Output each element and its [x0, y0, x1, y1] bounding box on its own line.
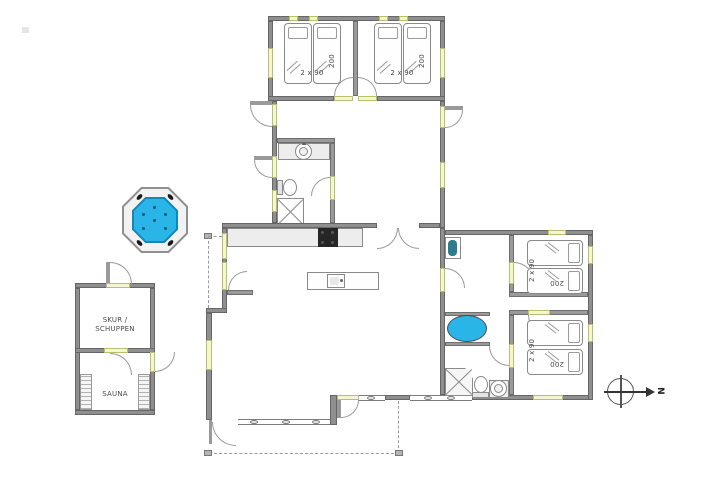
shed-label-line1: SKUR / — [103, 316, 128, 324]
window-pane — [367, 396, 375, 400]
window-pane — [312, 420, 320, 424]
door-opening — [358, 96, 377, 101]
hot-tub-seat-dot — [164, 227, 167, 230]
north-label: N — [655, 385, 665, 397]
pillow — [288, 27, 308, 39]
hot-tub-seat-dot — [142, 227, 145, 230]
terrace-post — [204, 450, 212, 456]
window — [222, 233, 227, 259]
bed-size-label: 2 x 90 — [528, 248, 536, 282]
terrace-post — [395, 450, 403, 456]
bed-size-label: 2 x 90 — [292, 69, 332, 77]
window — [399, 16, 408, 21]
wall — [268, 96, 334, 101]
door-swing — [250, 105, 272, 127]
wall — [445, 230, 593, 235]
wall — [385, 395, 410, 400]
toilet — [283, 179, 297, 196]
pillow — [568, 352, 580, 372]
window — [206, 340, 212, 370]
door-swing — [110, 353, 132, 375]
water-heater — [448, 240, 457, 256]
wall — [445, 342, 490, 346]
window — [588, 246, 593, 264]
door-opening — [104, 348, 128, 353]
bed-size-label: 2 x 90 — [382, 69, 422, 77]
shed-label-line2: SCHUPPEN — [95, 325, 134, 333]
window — [440, 162, 445, 188]
hot-tub-seat-dot — [153, 219, 156, 222]
toilet-tank — [472, 392, 489, 398]
door-swing — [341, 400, 359, 418]
door-swing — [489, 346, 509, 366]
terrace-line — [208, 236, 209, 308]
window — [309, 16, 318, 21]
sink-faucet — [340, 279, 343, 282]
window — [548, 230, 566, 235]
burner — [331, 241, 334, 244]
door-swing — [311, 177, 330, 196]
wall — [227, 290, 253, 295]
wall — [377, 96, 445, 101]
window — [289, 16, 298, 21]
window — [533, 395, 563, 400]
door-swing — [254, 160, 272, 178]
sink-bowl — [330, 277, 339, 285]
bed-length-label: 200 — [545, 360, 569, 368]
washbasin-bowl — [494, 384, 503, 393]
shed-label: SKUR / SCHUPPEN — [78, 316, 152, 334]
window-pane — [282, 420, 290, 424]
toilet — [474, 376, 488, 393]
terrace-line — [398, 401, 399, 453]
window — [268, 48, 273, 78]
bed-length-label: 200 — [545, 279, 569, 287]
washbasin-bowl — [299, 147, 308, 156]
door-swing — [228, 271, 247, 290]
door-opening — [272, 156, 277, 178]
door-swing — [445, 268, 465, 288]
door-swing — [212, 422, 236, 446]
floor-plan: 2 x 90 200 2 x 90 200 — [0, 0, 718, 479]
bed-size-label: 2 x 90 — [528, 328, 536, 362]
bed-length-label: 200 — [418, 40, 426, 68]
terrace-line — [209, 453, 399, 454]
door-opening — [272, 104, 277, 126]
pillow — [568, 243, 580, 263]
burner — [321, 231, 324, 234]
window — [440, 48, 445, 78]
pillow — [317, 27, 337, 39]
door-swing — [110, 262, 132, 284]
hot-tub-seat-dot — [142, 213, 145, 216]
pillow — [568, 271, 580, 291]
hot-tub-seat-dot — [153, 206, 156, 209]
door-swing — [398, 228, 419, 249]
compass: N — [600, 370, 670, 410]
door-swing — [155, 352, 175, 372]
door-opening — [334, 96, 353, 101]
door-opening — [222, 262, 227, 290]
faucet — [302, 142, 306, 145]
door-swing — [377, 228, 398, 249]
hot-tub-seat-dot — [164, 213, 167, 216]
kitchen-counter — [227, 228, 363, 247]
window — [379, 16, 388, 21]
door-swing — [445, 110, 463, 128]
pillow — [407, 27, 427, 39]
door-opening — [330, 176, 335, 200]
window-pane — [424, 396, 432, 400]
wall — [75, 410, 155, 415]
burner — [331, 231, 334, 234]
burner — [321, 241, 324, 244]
sauna-label: SAUNA — [85, 390, 145, 398]
pillow — [378, 27, 398, 39]
bathtub — [447, 315, 487, 342]
north-arrowhead — [646, 387, 655, 397]
compass-axis-horizontal — [604, 391, 648, 393]
bed-length-label: 200 — [328, 40, 336, 68]
wall — [330, 395, 337, 425]
window-pane — [447, 396, 455, 400]
window — [588, 324, 593, 342]
wall — [419, 223, 440, 228]
door-opening — [509, 344, 514, 368]
pillow — [568, 323, 580, 343]
window-pane — [250, 420, 258, 424]
terrace-line — [208, 236, 222, 237]
faint-mark — [22, 27, 29, 33]
